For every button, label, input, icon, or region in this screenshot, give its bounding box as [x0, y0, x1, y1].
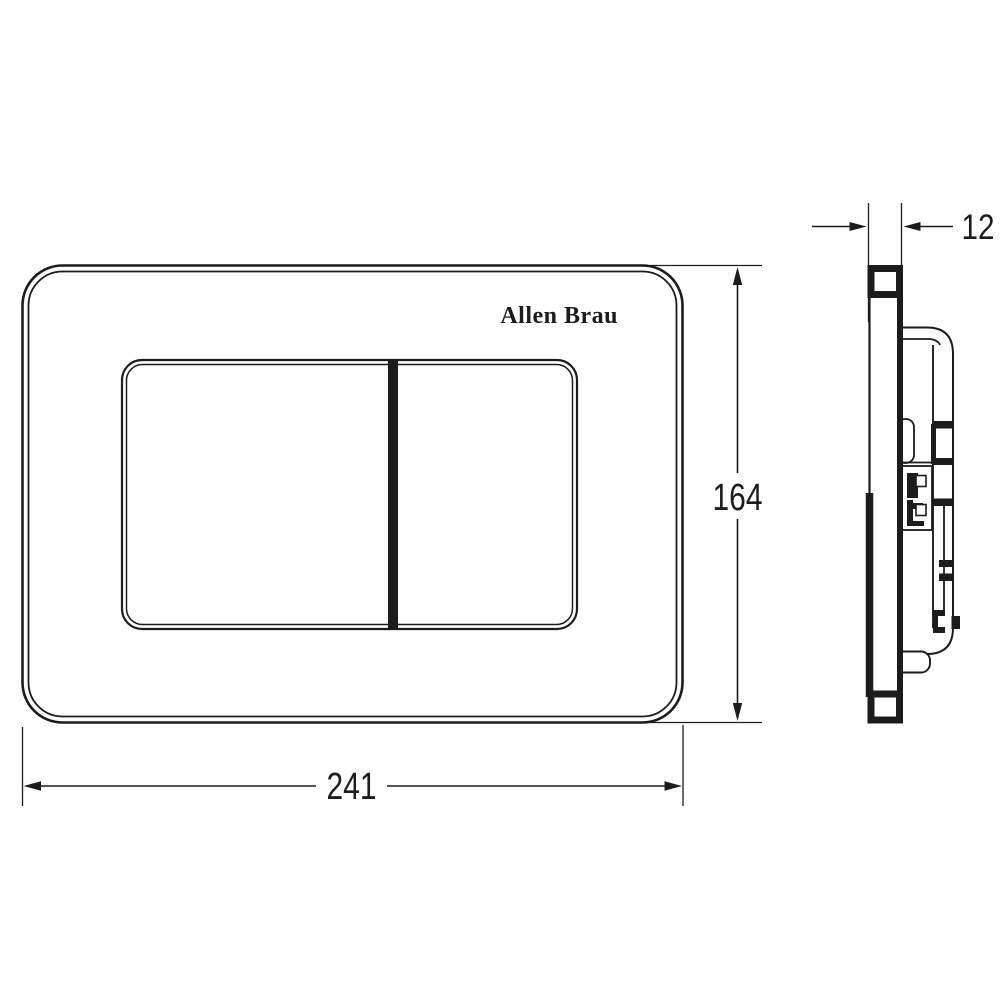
height-dimension-label: 164	[713, 477, 763, 519]
thickness-dimension: 12	[812, 203, 995, 322]
button-divider	[388, 361, 398, 628]
arrowhead-down	[733, 703, 742, 721]
drawing-root: Allen Brau	[23, 203, 995, 808]
latch-notch	[916, 476, 926, 487]
rib-section-cut	[932, 458, 953, 465]
front-view: Allen Brau	[23, 266, 683, 723]
lower-clip	[933, 627, 945, 633]
brand-logo: Allen Brau	[500, 303, 618, 329]
arrowhead-left	[24, 781, 42, 790]
technical-drawing: Allen Brau	[0, 0, 1005, 1005]
latch-notch	[916, 505, 926, 516]
arrowhead-up	[733, 267, 742, 285]
rib-section-cut	[939, 574, 954, 582]
rib-section-cut	[932, 499, 953, 507]
width-dimension: 241	[23, 725, 684, 808]
flush-plate-drawing: Allen Brau	[0, 0, 1005, 1005]
thickness-dimension-label: 12	[962, 208, 995, 247]
button-panel-outer-edge	[122, 360, 577, 629]
plate-profile	[866, 265, 903, 723]
latch-part	[907, 500, 913, 524]
rib-section-cut	[939, 560, 954, 567]
side-view	[866, 265, 960, 723]
arrowhead-left	[904, 222, 921, 231]
width-dimension-label: 241	[327, 766, 377, 808]
lower-clip-nub	[952, 616, 961, 629]
arrowhead-right	[850, 222, 867, 231]
arrowhead-right	[665, 781, 683, 790]
latch-part	[907, 521, 924, 526]
